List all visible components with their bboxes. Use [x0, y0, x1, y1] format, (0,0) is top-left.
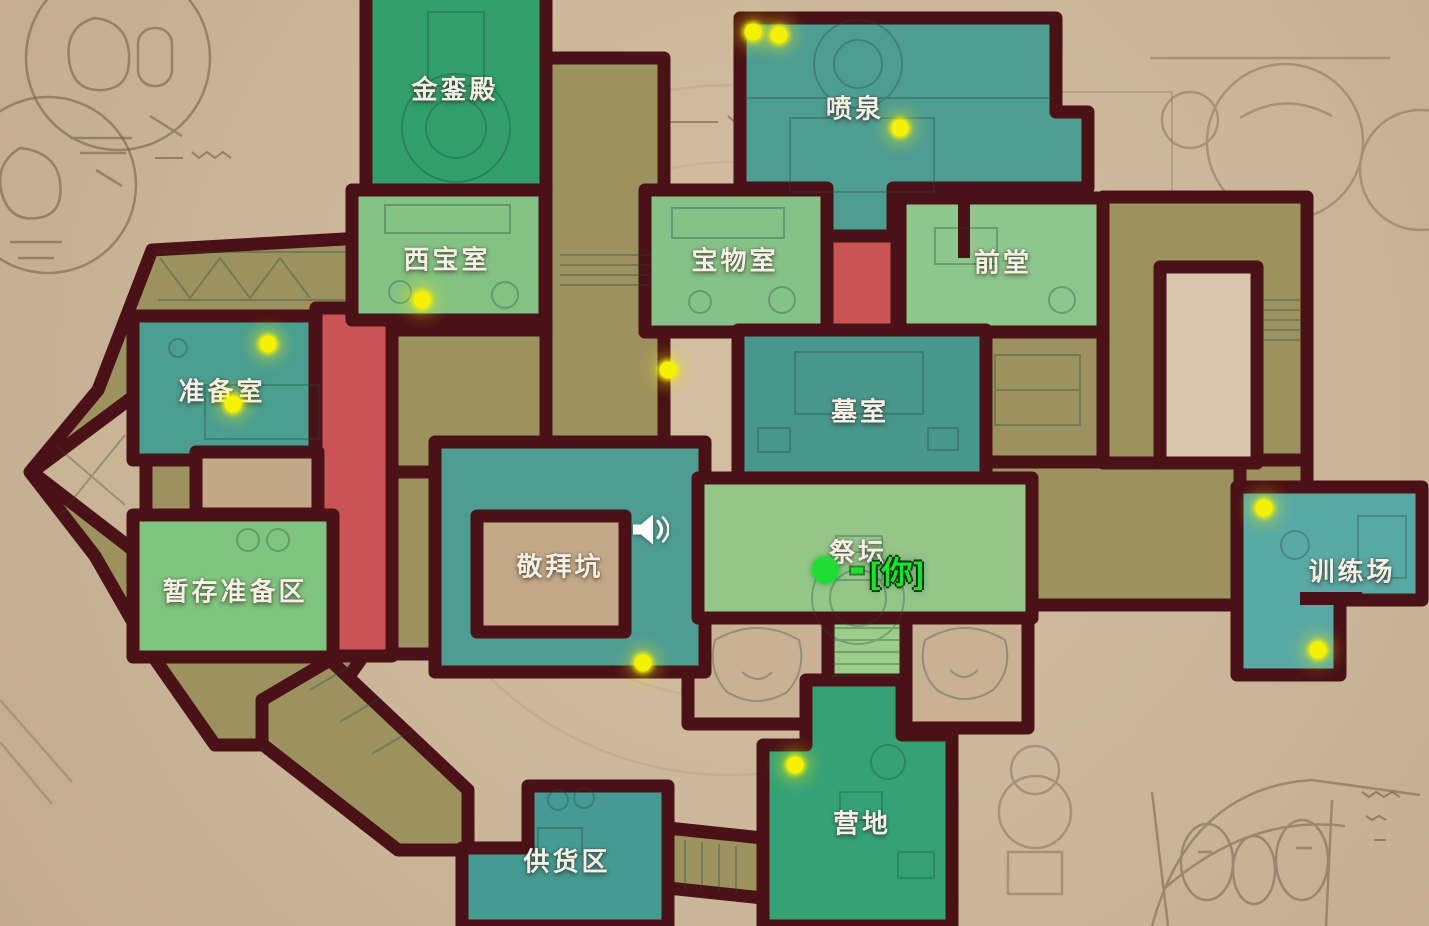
task-dot — [414, 292, 431, 309]
task-dot — [225, 396, 242, 413]
room-label-tomb: 墓室 — [831, 392, 889, 429]
room-label-west-treasure: 西宝室 — [403, 240, 490, 277]
game-minimap[interactable]: 金銮殿 喷泉 西宝室 宝物室 前堂 准备室 墓室 敬拜坑 祭坛 暂存准备区 训练… — [0, 0, 1429, 926]
room-label-prep: 准备室 — [178, 372, 265, 409]
room-label-fountain: 喷泉 — [826, 89, 884, 126]
room-storage-shape — [196, 452, 318, 514]
task-dot — [892, 120, 909, 137]
task-dot — [745, 24, 762, 41]
wall-stub — [1300, 592, 1362, 605]
room-label-staging: 暂存准备区 — [162, 572, 307, 609]
task-dot — [660, 362, 677, 379]
speaker-icon — [631, 513, 669, 552]
room-label-golden-hall: 金銮殿 — [411, 70, 498, 107]
task-dot — [1256, 500, 1273, 517]
player-dot — [812, 557, 839, 584]
task-dot — [771, 27, 788, 44]
player-dash-indicator — [851, 567, 863, 573]
room-northeast-inner — [1160, 267, 1257, 463]
room-label-camp: 营地 — [833, 804, 891, 841]
player-label: [你] — [870, 548, 925, 593]
room-label-training: 训练场 — [1308, 552, 1395, 589]
map-geometry — [0, 0, 1429, 926]
task-dot — [1310, 642, 1327, 659]
room-label-supply: 供货区 — [523, 842, 610, 879]
task-dot — [787, 757, 804, 774]
room-label-treasure: 宝物室 — [691, 241, 778, 278]
task-dot — [260, 336, 277, 353]
task-dot — [635, 655, 652, 672]
player-marker: [你] — [812, 548, 925, 593]
walkway-staging-supply — [262, 660, 468, 850]
room-label-worship-pit: 敬拜坑 — [516, 547, 603, 584]
walkway-supply-camp — [668, 828, 763, 898]
room-label-front-hall: 前堂 — [974, 243, 1032, 280]
